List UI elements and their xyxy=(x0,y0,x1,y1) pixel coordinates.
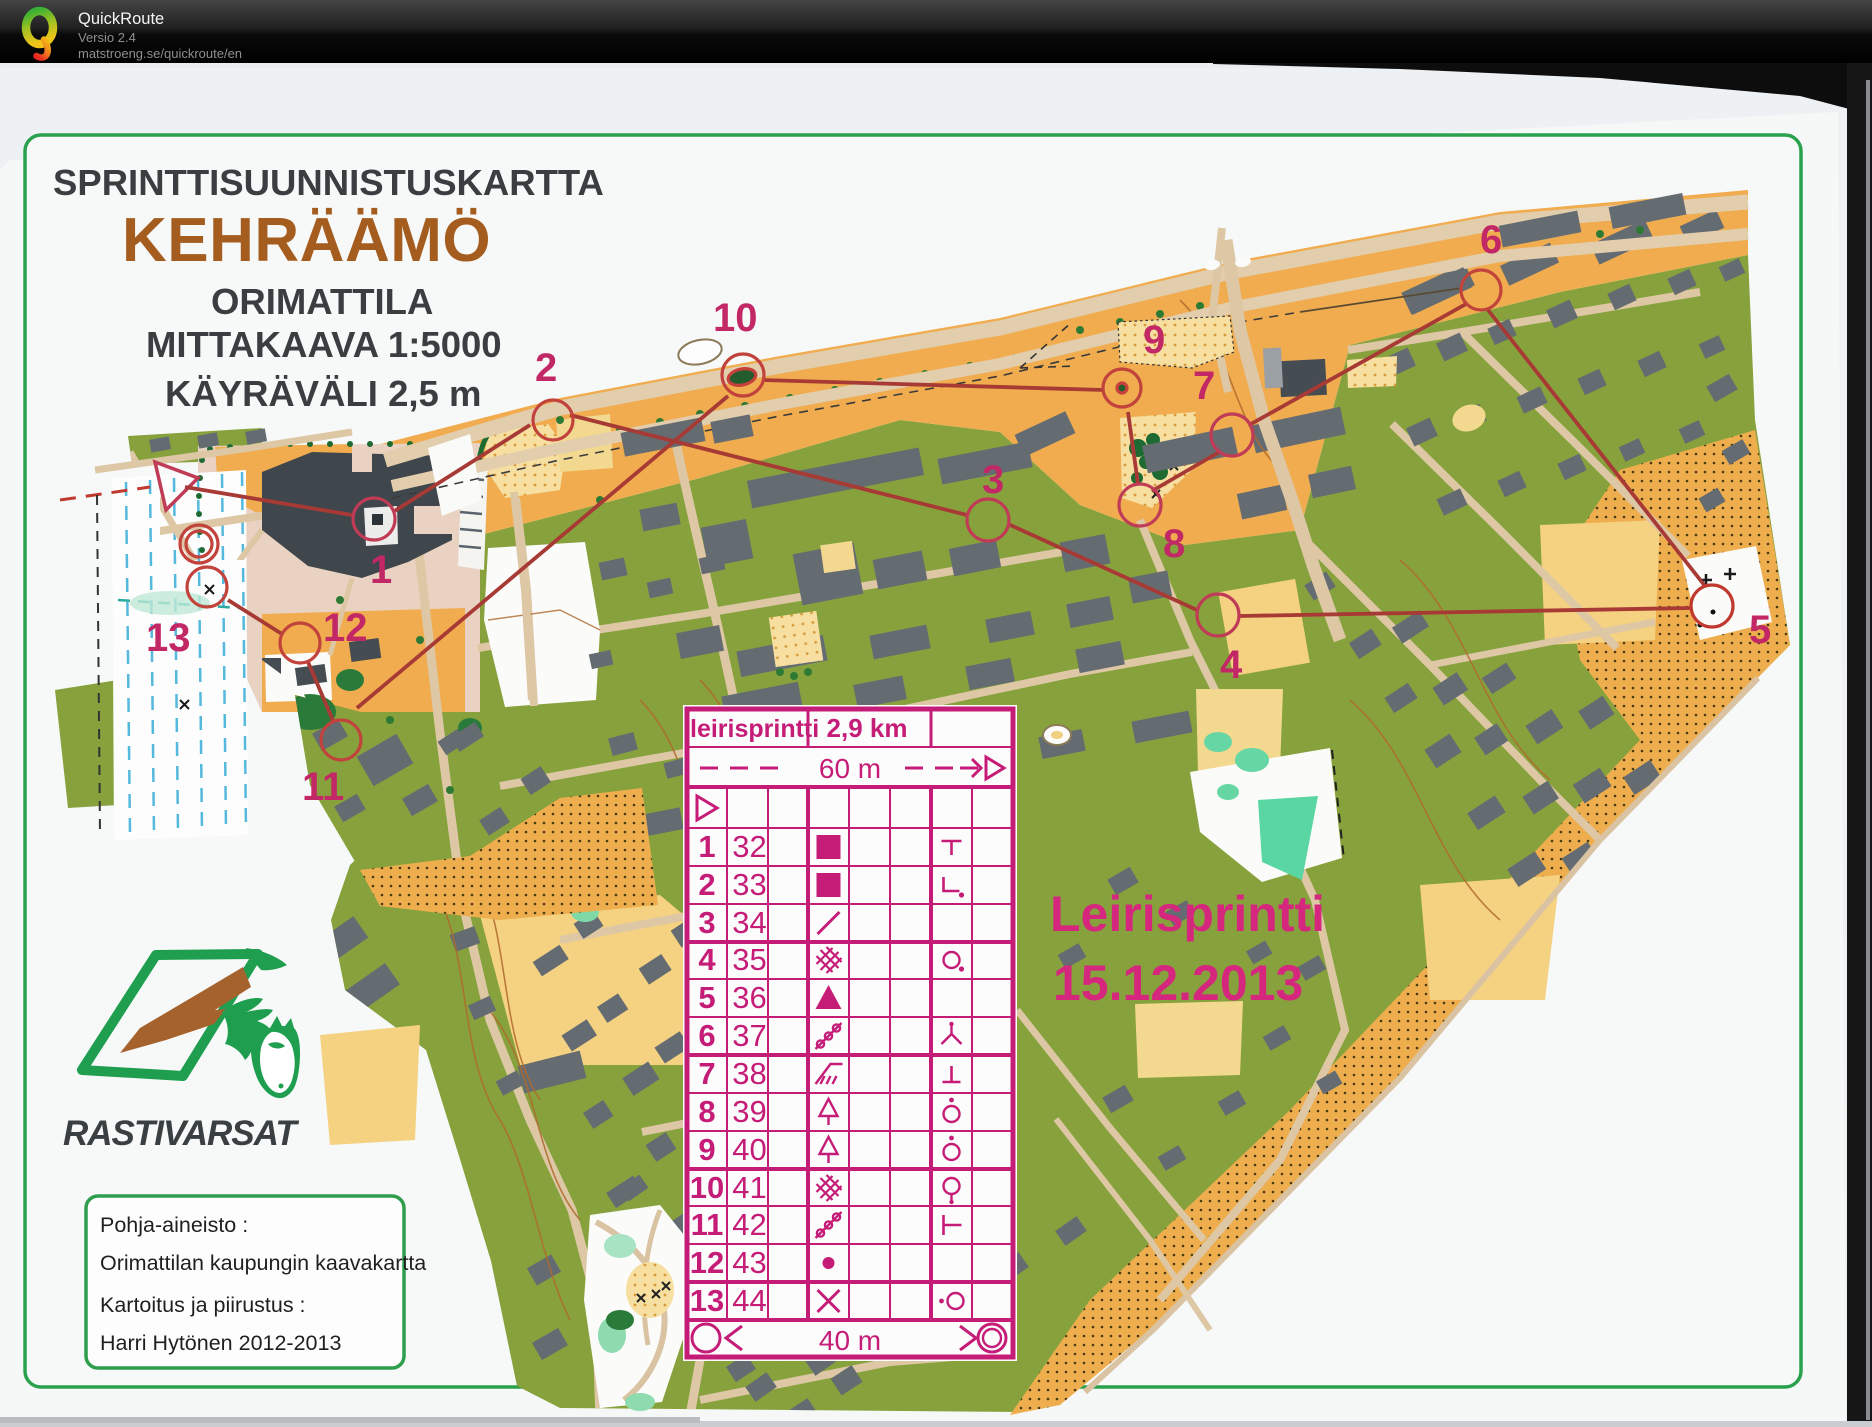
svg-text:6: 6 xyxy=(698,1018,715,1053)
svg-text:9: 9 xyxy=(698,1132,715,1167)
svg-text:matstroeng.se/quickroute/en: matstroeng.se/quickroute/en xyxy=(78,46,242,61)
svg-text:7: 7 xyxy=(1193,364,1215,408)
svg-text:36: 36 xyxy=(732,980,766,1015)
svg-text:6: 6 xyxy=(1480,218,1502,262)
svg-text:44: 44 xyxy=(732,1283,766,1318)
svg-text:Versio 2.4: Versio 2.4 xyxy=(78,30,136,45)
svg-text:8: 8 xyxy=(698,1094,715,1129)
svg-text:KÄYRÄVÄLI 2,5 m: KÄYRÄVÄLI 2,5 m xyxy=(165,373,481,414)
svg-text:7: 7 xyxy=(698,1056,715,1091)
svg-text:ORIMATTILA: ORIMATTILA xyxy=(211,281,433,322)
svg-text:39: 39 xyxy=(732,1094,766,1129)
svg-text:33: 33 xyxy=(732,867,766,902)
svg-text:15.12.2013: 15.12.2013 xyxy=(1053,955,1303,1011)
svg-text:3: 3 xyxy=(982,458,1004,502)
svg-text:2: 2 xyxy=(698,867,715,902)
svg-text:Orimattilan kaupungin kaavakar: Orimattilan kaupungin kaavakartta xyxy=(100,1251,426,1275)
svg-text:10: 10 xyxy=(713,296,758,340)
svg-text:QuickRoute: QuickRoute xyxy=(78,10,164,28)
svg-text:60 m: 60 m xyxy=(819,753,881,784)
svg-text:2: 2 xyxy=(535,346,557,390)
svg-text:12: 12 xyxy=(690,1245,724,1280)
svg-text:3: 3 xyxy=(698,905,715,940)
svg-text:SPRINTTISUUNNISTUSKARTTA: SPRINTTISUUNNISTUSKARTTA xyxy=(53,162,604,203)
svg-text:9: 9 xyxy=(1143,318,1165,362)
svg-text:40: 40 xyxy=(732,1132,766,1167)
svg-text:MITTAKAAVA 1:5000: MITTAKAAVA 1:5000 xyxy=(146,324,502,365)
svg-text:40 m: 40 m xyxy=(819,1325,881,1356)
svg-text:12: 12 xyxy=(323,606,368,650)
svg-text:11: 11 xyxy=(691,1207,724,1242)
svg-text:5: 5 xyxy=(1749,608,1771,652)
svg-text:2,9 km: 2,9 km xyxy=(827,713,908,743)
svg-text:37: 37 xyxy=(732,1018,766,1053)
svg-text:38: 38 xyxy=(732,1056,766,1091)
svg-text:Pohja-aineisto :: Pohja-aineisto : xyxy=(100,1213,248,1237)
svg-text:Kartoitus ja piirustus :: Kartoitus ja piirustus : xyxy=(100,1293,306,1317)
svg-text:35: 35 xyxy=(732,942,766,977)
svg-text:42: 42 xyxy=(732,1207,766,1242)
svg-text:13: 13 xyxy=(690,1283,724,1318)
svg-text:RASTIVARSAT: RASTIVARSAT xyxy=(63,1114,299,1153)
svg-text:32: 32 xyxy=(732,829,766,864)
svg-text:1: 1 xyxy=(370,548,392,592)
svg-text:4: 4 xyxy=(698,942,716,977)
svg-text:5: 5 xyxy=(698,980,715,1015)
svg-text:41: 41 xyxy=(732,1170,766,1205)
svg-text:43: 43 xyxy=(732,1245,766,1280)
svg-text:10: 10 xyxy=(690,1170,724,1205)
svg-text:13: 13 xyxy=(146,616,191,660)
svg-text:leirisprintti: leirisprintti xyxy=(690,715,819,743)
svg-text:Harri Hytönen 2012-2013: Harri Hytönen 2012-2013 xyxy=(100,1331,341,1355)
svg-text:8: 8 xyxy=(1163,522,1185,566)
svg-text:11: 11 xyxy=(302,765,344,809)
svg-text:Leirisprintti: Leirisprintti xyxy=(1050,886,1325,942)
svg-text:34: 34 xyxy=(732,905,766,940)
svg-text:1: 1 xyxy=(698,829,715,864)
svg-text:4: 4 xyxy=(1220,643,1243,687)
svg-text:KEHRÄÄMÖ: KEHRÄÄMÖ xyxy=(122,206,491,275)
